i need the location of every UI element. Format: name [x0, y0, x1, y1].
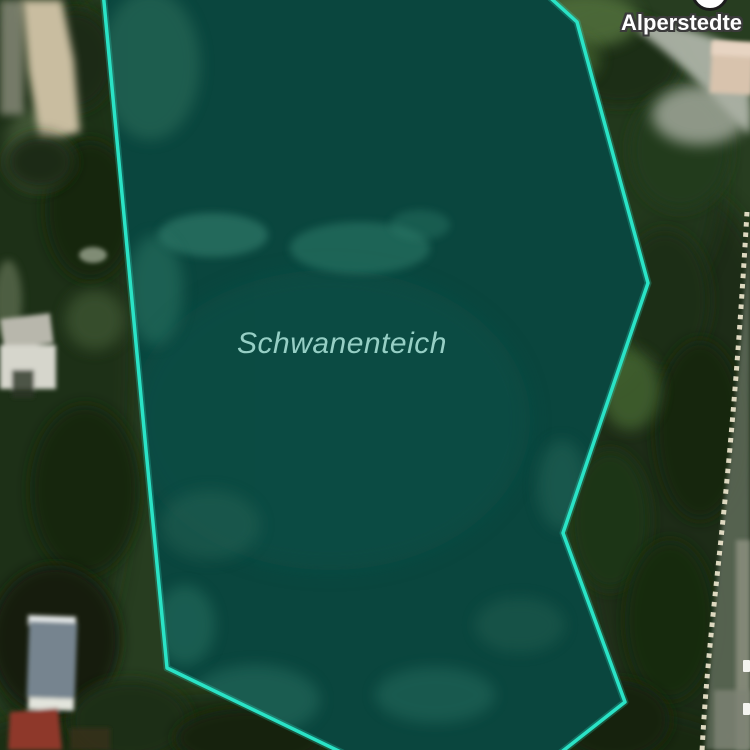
building-roof-blue — [27, 621, 78, 699]
road-center-dash — [743, 703, 750, 715]
lake-name-label: Schwanenteich — [237, 326, 467, 362]
road-center-dash — [743, 660, 750, 672]
building-roof-red — [8, 708, 62, 750]
satellite-map-view[interactable]: Schwanenteich Alperstedte — [0, 0, 750, 750]
satellite-map-canvas[interactable] — [0, 0, 750, 750]
building-roof-top-right — [710, 41, 750, 95]
settlement-name-label: Alperstedte — [621, 10, 742, 36]
lake-polygon-highlight[interactable] — [100, 0, 648, 750]
